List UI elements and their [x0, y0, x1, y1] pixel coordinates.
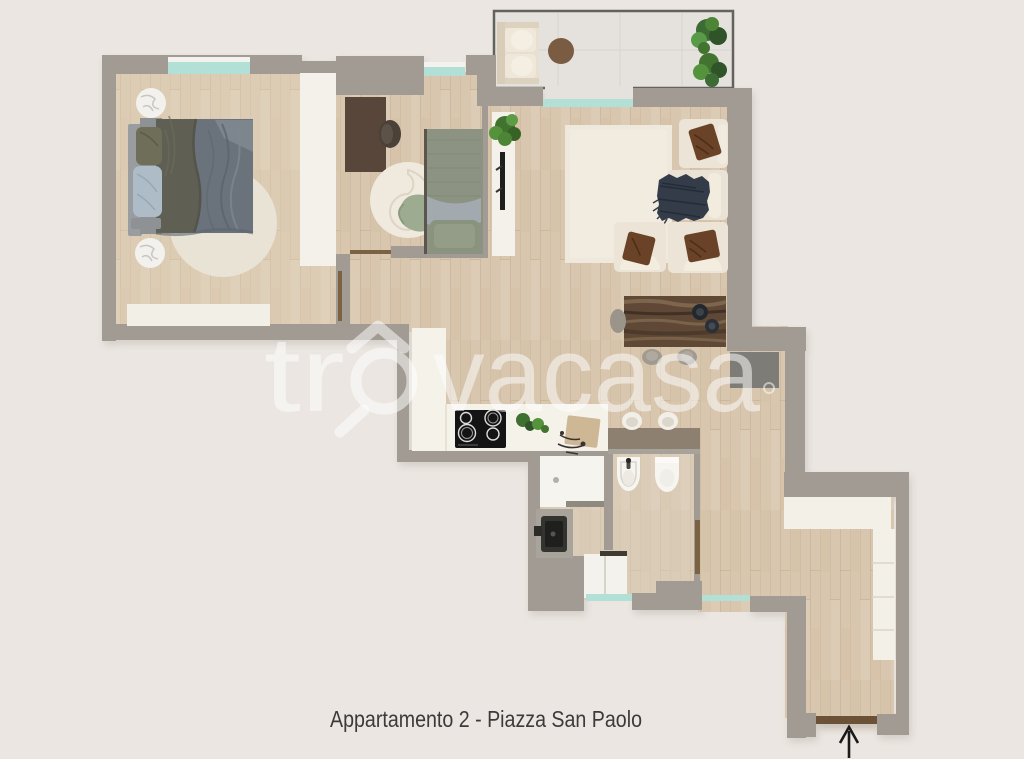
svg-text:vacasa: vacasa [433, 314, 760, 434]
svg-text:tr: tr [264, 314, 345, 434]
svg-text:Appartamento 2 - Piazza San P: Appartamento 2 - Piazza San Paolo [330, 706, 642, 732]
